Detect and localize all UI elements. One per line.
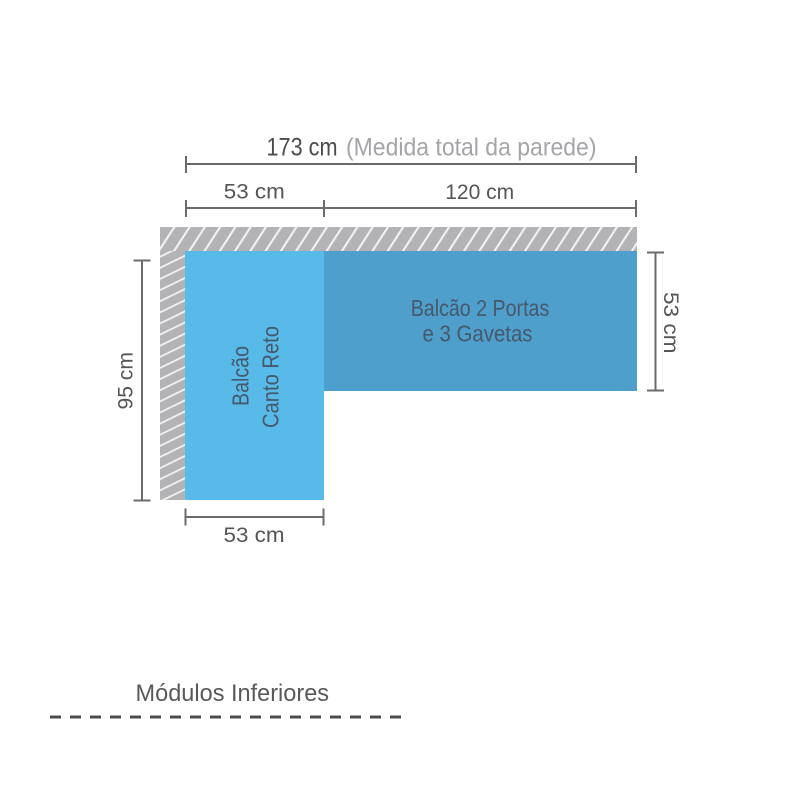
svg-text:120 cm: 120 cm: [445, 180, 514, 204]
svg-text:173 cm: 173 cm: [267, 134, 338, 162]
svg-text:95 cm: 95 cm: [114, 352, 138, 410]
svg-text:Módulos Inferiores: Módulos Inferiores: [136, 680, 330, 707]
svg-text:e 3 Gavetas: e 3 Gavetas: [423, 320, 533, 346]
svg-text:(Medida total da parede): (Medida total da parede): [346, 134, 597, 162]
svg-text:Balcão: Balcão: [228, 346, 254, 406]
svg-text:53 cm: 53 cm: [224, 523, 285, 547]
svg-text:Canto Reto: Canto Reto: [258, 326, 284, 428]
svg-text:53 cm: 53 cm: [659, 292, 683, 354]
svg-text:53 cm: 53 cm: [224, 180, 285, 204]
svg-text:Balcão 2 Portas: Balcão 2 Portas: [411, 295, 550, 321]
